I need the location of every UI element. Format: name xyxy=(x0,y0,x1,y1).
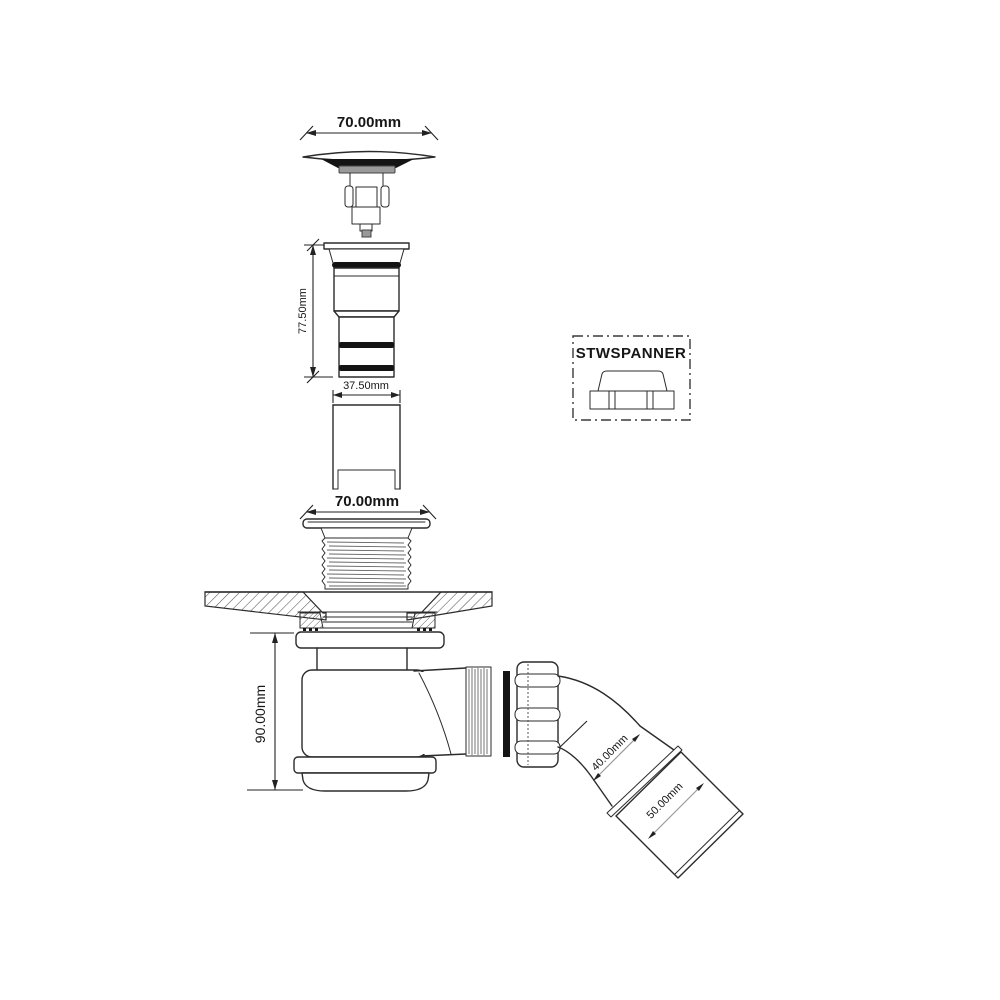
dim-elbow-inlet: 40.00mm xyxy=(559,721,640,781)
spanner-tool xyxy=(590,371,674,409)
diagram-canvas: 70.00mm 77.50mm xyxy=(0,0,1000,1000)
trap-base-ring xyxy=(294,757,436,773)
dim-tube-width-label: 37.50mm xyxy=(343,380,389,392)
dim-tube-width: 37.50mm xyxy=(333,380,400,403)
spanner-box: STWSPANNER xyxy=(573,336,690,420)
dim-cap-width-label: 70.00mm xyxy=(337,114,401,131)
outlet-neck xyxy=(415,672,466,754)
washer-right-wedge xyxy=(412,613,435,628)
trap-cup xyxy=(302,670,427,757)
o-ring-lower xyxy=(339,365,394,371)
outlet-thread xyxy=(466,667,491,756)
outlet-pipe xyxy=(616,752,743,878)
waste-body xyxy=(324,243,409,377)
o-ring-upper xyxy=(332,262,401,268)
cap-base-plate xyxy=(339,166,395,173)
dim-cap-width: 70.00mm xyxy=(300,114,438,140)
body-top-flange xyxy=(324,243,409,249)
threaded-tail xyxy=(322,538,411,589)
elbow-bend xyxy=(558,676,743,878)
spanner-box-label: STWSPANNER xyxy=(576,345,687,362)
trap-base-dish xyxy=(302,773,429,791)
shower-tray-section xyxy=(205,592,492,620)
trap-body xyxy=(294,648,491,791)
technical-diagram-shower-waste: 70.00mm 77.50mm xyxy=(0,0,1000,1000)
dim-body-height: 77.50mm xyxy=(297,239,333,383)
o-ring-mid xyxy=(339,342,394,348)
compression-nut xyxy=(515,662,560,767)
washer-left-wedge xyxy=(300,613,323,628)
outlet-gasket xyxy=(503,671,510,757)
seal-washer xyxy=(298,612,437,631)
dim-flange-width-label: 70.00mm xyxy=(335,493,399,510)
dim-elbow-inlet-label: 40.00mm xyxy=(590,733,631,774)
stem-tip xyxy=(362,230,371,237)
dim-trap-height-label: 90.00mm xyxy=(252,685,268,743)
backnut xyxy=(296,632,444,648)
dim-body-height-label: 77.50mm xyxy=(297,288,309,334)
dim-flange-width: 70.00mm xyxy=(300,493,436,519)
flange-rim xyxy=(303,519,430,528)
waste-flange xyxy=(303,519,430,589)
cap-stem xyxy=(345,173,389,237)
plug-cap xyxy=(303,152,435,238)
adjustment-tube xyxy=(333,405,400,489)
